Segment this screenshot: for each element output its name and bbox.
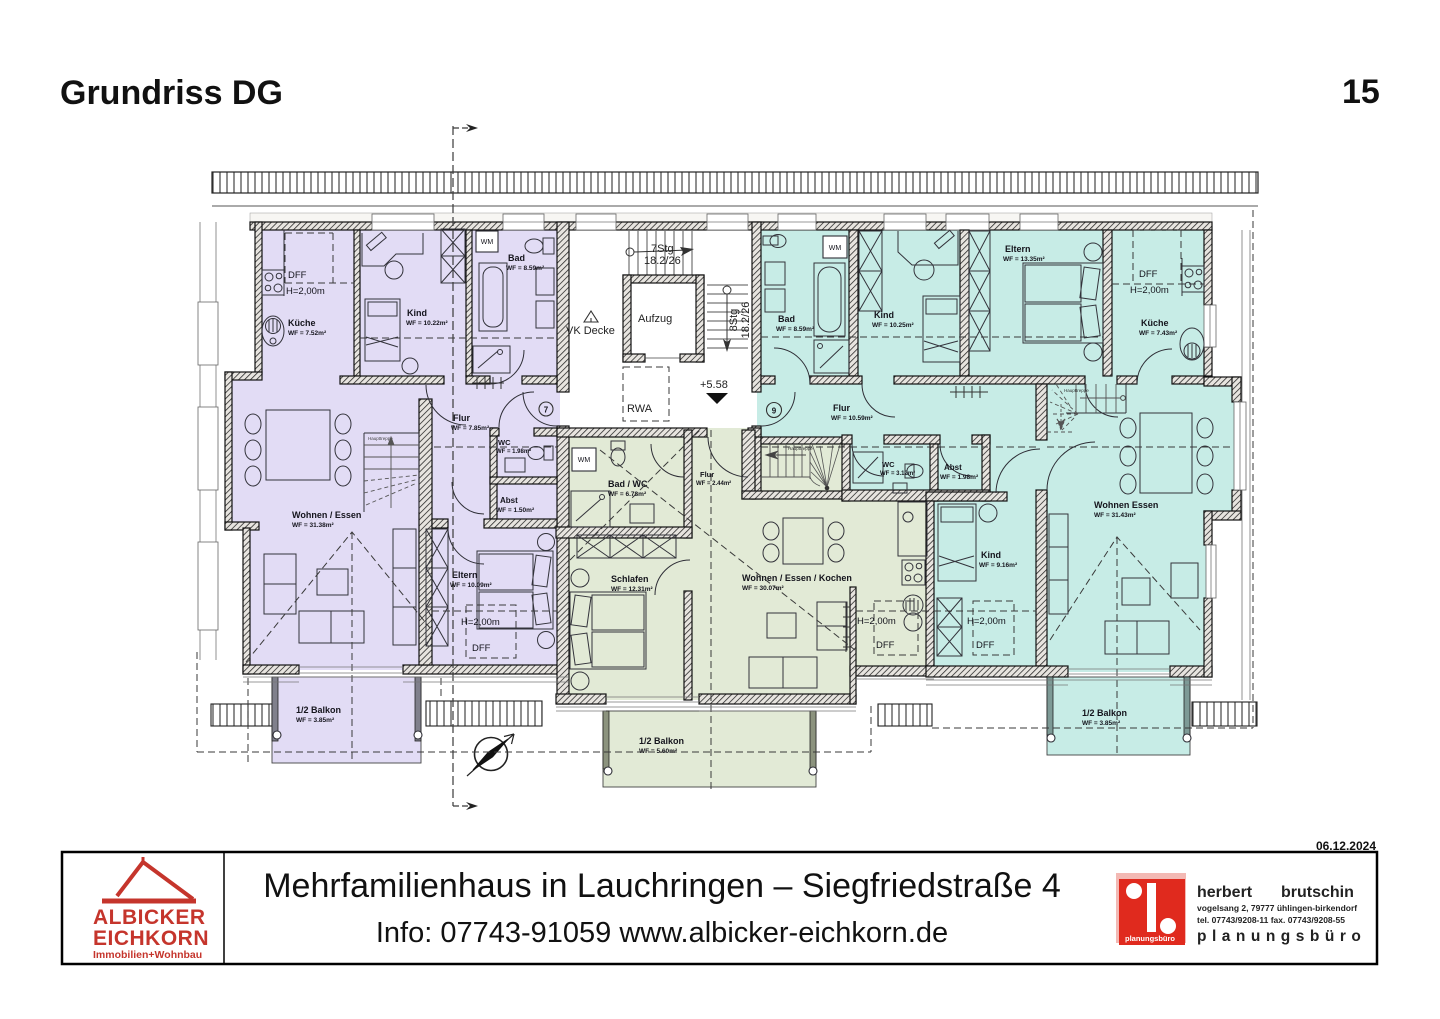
svg-text:DFF: DFF	[976, 640, 995, 651]
svg-text:WC: WC	[882, 460, 895, 469]
svg-text:WF = 1.98m²: WF = 1.98m²	[940, 474, 979, 481]
svg-text:Bad: Bad	[508, 253, 525, 263]
svg-text:tel. 07743/9208-11 fax. 07743: tel. 07743/9208-11 fax. 07743/9208-55	[1197, 915, 1345, 925]
svg-text:WF = 3.85m²: WF = 3.85m²	[1082, 720, 1121, 727]
svg-text:DFF: DFF	[472, 643, 491, 654]
svg-text:Haupttreppe: Haupttreppe	[1064, 388, 1089, 393]
svg-text:WF = 8.59m²: WF = 8.59m²	[506, 265, 545, 272]
svg-text:18.2/26: 18.2/26	[644, 255, 681, 267]
svg-text:7: 7	[544, 406, 549, 415]
svg-text:Flur: Flur	[700, 470, 714, 479]
svg-text:DFF: DFF	[1139, 269, 1158, 280]
svg-text:Küche: Küche	[288, 318, 316, 328]
svg-text:WF = 31.43m²: WF = 31.43m²	[1094, 512, 1137, 519]
svg-text:WF = 10.22m²: WF = 10.22m²	[406, 320, 449, 327]
svg-text:Kind: Kind	[407, 308, 427, 318]
svg-text:1/2 Balkon: 1/2 Balkon	[1082, 708, 1127, 718]
svg-text:Info: 07743-91059 www.albicker: Info: 07743-91059 www.albicker-eichkorn.…	[376, 917, 948, 949]
svg-text:ALBICKER: ALBICKER	[93, 906, 206, 929]
svg-text:18.2/26: 18.2/26	[740, 302, 752, 339]
svg-text:WF = 31.38m²: WF = 31.38m²	[292, 522, 335, 529]
svg-text:Eltern: Eltern	[1005, 244, 1031, 254]
svg-text:Aufzug: Aufzug	[638, 313, 672, 325]
svg-text:Grundriss DG: Grundriss DG	[60, 74, 283, 112]
svg-text:1/2 Balkon: 1/2 Balkon	[296, 705, 341, 715]
svg-text:EICHKORN: EICHKORN	[93, 927, 209, 950]
svg-text:planungsbüro: planungsbüro	[1125, 934, 1175, 943]
svg-text:H=2,00m: H=2,00m	[1130, 285, 1169, 296]
svg-text:vogelsang 2, 79777 ühlingen-bi: vogelsang 2, 79777 ühlingen-birkendorf	[1197, 903, 1357, 913]
svg-text:H=2,00m: H=2,00m	[967, 616, 1006, 627]
svg-text:7Stg: 7Stg	[651, 243, 674, 255]
svg-text:Immobilien+Wohnbau: Immobilien+Wohnbau	[93, 949, 202, 961]
svg-text:WF = 12.31m²: WF = 12.31m²	[611, 586, 654, 593]
svg-text:WF = 2.44m²: WF = 2.44m²	[696, 480, 731, 487]
svg-text:9: 9	[772, 407, 777, 416]
svg-text:DFF: DFF	[876, 640, 895, 651]
svg-text:Bad: Bad	[778, 314, 795, 324]
svg-text:Kind: Kind	[874, 310, 894, 320]
svg-text:WF = 7.52m²: WF = 7.52m²	[288, 330, 327, 337]
svg-text:Wohnen Essen: Wohnen Essen	[1094, 500, 1158, 510]
svg-text:brutschin: brutschin	[1281, 884, 1354, 901]
svg-text:WC: WC	[498, 438, 511, 447]
svg-text:15: 15	[1342, 73, 1380, 111]
svg-text:WF = 8.59m²: WF = 8.59m²	[776, 326, 815, 333]
svg-text:WF = 7.85m²: WF = 7.85m²	[451, 425, 490, 432]
svg-text:herbert: herbert	[1197, 884, 1253, 901]
svg-text:Flur: Flur	[833, 403, 850, 413]
svg-text:8Stg: 8Stg	[728, 309, 740, 332]
svg-text:WF = 10.09m²: WF = 10.09m²	[450, 582, 493, 589]
svg-text:WF = 10.25m²: WF = 10.25m²	[872, 322, 915, 329]
svg-text:Kind: Kind	[981, 550, 1001, 560]
svg-text:1/2 Balkon: 1/2 Balkon	[639, 736, 684, 746]
svg-text:Küche: Küche	[1141, 318, 1169, 328]
svg-text:WF = 30.07m²: WF = 30.07m²	[742, 585, 785, 592]
svg-text:Mehrfamilienhaus in Lauchringe: Mehrfamilienhaus in Lauchringen – Siegfr…	[263, 867, 1061, 905]
svg-text:+5.58: +5.58	[700, 379, 728, 391]
svg-text:H=2,00m: H=2,00m	[286, 286, 325, 297]
svg-text:WF = 3.85m²: WF = 3.85m²	[296, 717, 335, 724]
svg-text:Eltern: Eltern	[452, 570, 478, 580]
svg-text:WF = 7.43m²: WF = 7.43m²	[1139, 330, 1178, 337]
svg-text:Abst: Abst	[944, 463, 962, 472]
svg-text:RWA: RWA	[627, 403, 653, 415]
svg-text:WF = 9.16m²: WF = 9.16m²	[979, 562, 1018, 569]
svg-text:WF = 13.35m²: WF = 13.35m²	[1003, 256, 1046, 263]
svg-text:Haupttreppe: Haupttreppe	[788, 446, 813, 451]
svg-text:WF = 10.59m²: WF = 10.59m²	[831, 415, 874, 422]
svg-text:planungsbüro: planungsbüro	[1197, 928, 1366, 945]
svg-text:DFF: DFF	[288, 270, 307, 281]
svg-text:WM: WM	[481, 239, 494, 246]
svg-text:H=2,00m: H=2,00m	[857, 616, 896, 627]
svg-text:H=2,00m: H=2,00m	[461, 617, 500, 628]
svg-text:WF = 1.98m²: WF = 1.98m²	[496, 448, 531, 455]
svg-text:Flur: Flur	[453, 413, 470, 423]
svg-text:WF = 1.50m²: WF = 1.50m²	[496, 507, 535, 514]
svg-text:Wohnen / Essen: Wohnen / Essen	[292, 510, 361, 520]
svg-text:WF = 6.78m²: WF = 6.78m²	[608, 491, 647, 498]
svg-text:Abst: Abst	[500, 496, 518, 505]
svg-text:WM: WM	[578, 457, 591, 464]
svg-text:WM: WM	[829, 245, 842, 252]
svg-text:VK Decke: VK Decke	[566, 325, 615, 337]
svg-text:Schlafen: Schlafen	[611, 574, 649, 584]
